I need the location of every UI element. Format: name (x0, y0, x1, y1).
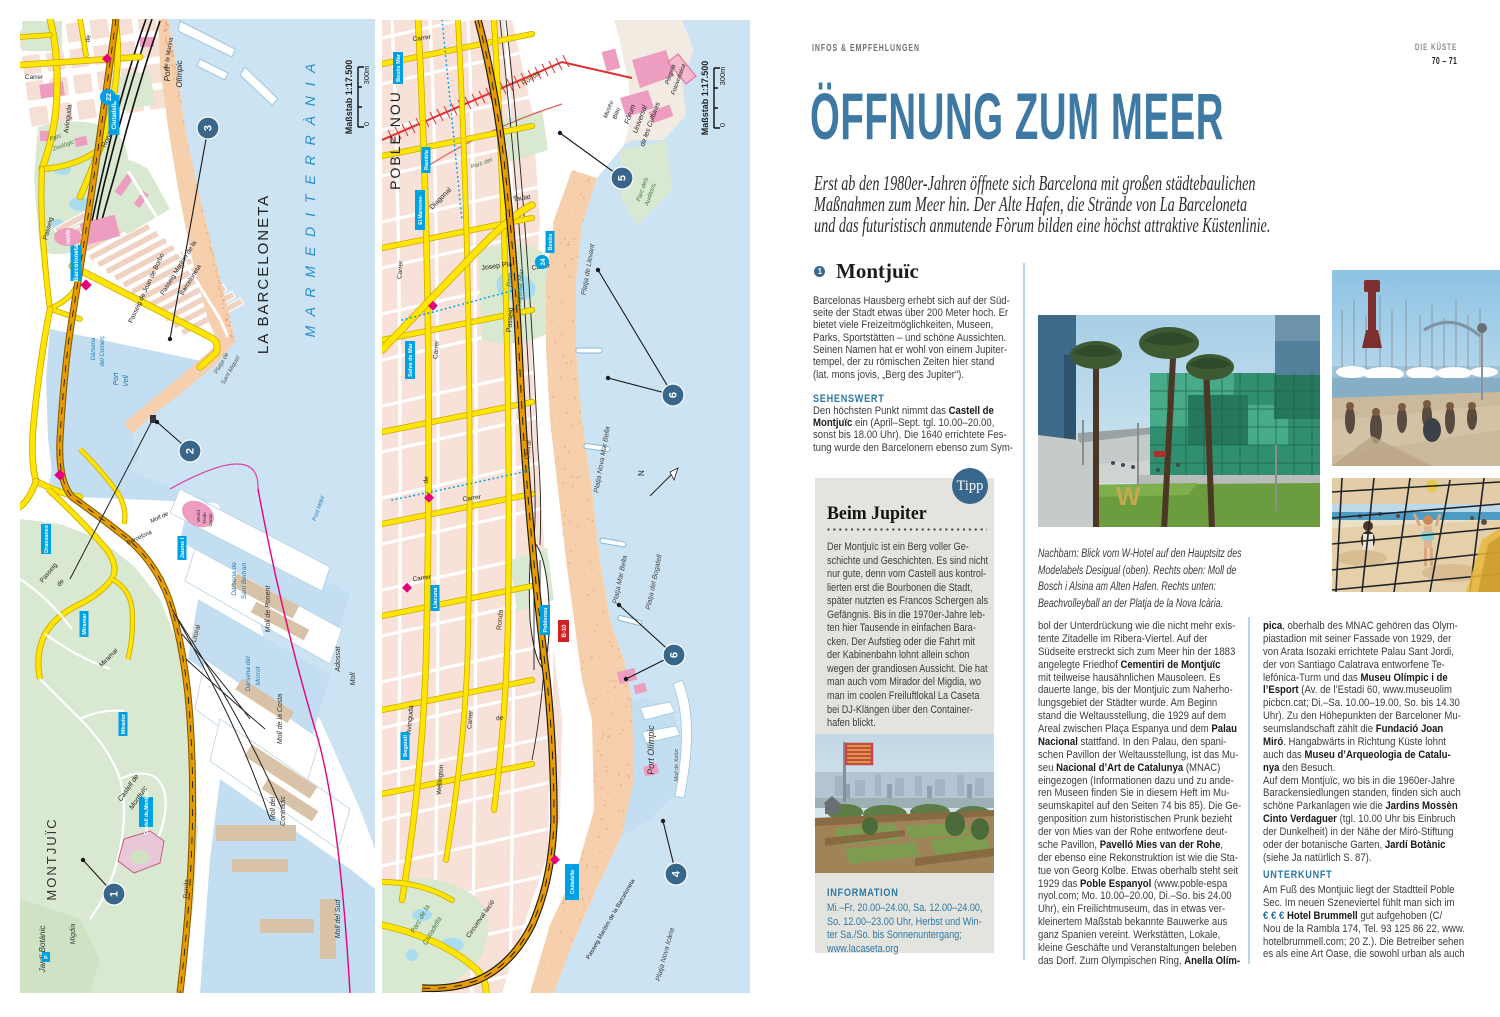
svg-text:Miramar: Miramar (82, 612, 88, 634)
svg-text:Parc: Parc (506, 272, 514, 287)
svg-text:Dàrsena: Dàrsena (91, 337, 97, 360)
svg-text:6: 6 (668, 392, 680, 398)
svg-text:Drassanes: Drassanes (44, 525, 50, 553)
svg-text:Besòs: Besòs (548, 234, 554, 251)
svg-text:Moll del: Moll del (270, 796, 277, 821)
svg-text:Vell: Vell (123, 375, 130, 387)
svg-text:N: N (637, 470, 646, 476)
svg-text:Poblenou: Poblenou (543, 607, 549, 632)
svg-text:Maßstab 1:17.500: Maßstab 1:17.500 (344, 60, 354, 135)
svg-text:Carrer: Carrer (25, 74, 44, 81)
svg-text:0: 0 (718, 123, 727, 127)
svg-text:300m: 300m (718, 67, 727, 86)
svg-text:W: W (1116, 481, 1141, 511)
svg-text:Moll de Xaloc: Moll de Xaloc (674, 748, 680, 781)
svg-text:Maßstab 1:17.500: Maßstab 1:17.500 (700, 61, 710, 136)
svg-text:24: 24 (540, 258, 547, 266)
svg-text:3: 3 (203, 125, 215, 131)
svg-text:Moll del Sud: Moll del Sud (335, 899, 342, 939)
svg-text:Dàrsena del: Dàrsena del (245, 656, 252, 692)
svg-text:LA BARCELONETA: LA BARCELONETA (255, 194, 272, 354)
svg-text:M A R M E D I T E R R À N I: M A R M E D I T E R R À N I A (302, 61, 318, 338)
svg-text:Castell de,Montjuïc: Castell de,Montjuïc (144, 789, 150, 835)
svg-text:6: 6 (669, 652, 681, 658)
svg-text:Olímpic: Olímpic (175, 60, 184, 87)
svg-text:de: de (423, 476, 431, 484)
svg-text:MONTJUÏC: MONTJUÏC (44, 817, 59, 900)
svg-text:Contradic: Contradic (280, 796, 287, 826)
svg-text:22: 22 (106, 93, 113, 101)
svg-text:Bogatell: Bogatell (403, 735, 409, 757)
svg-text:Jardí Botànic: Jardí Botànic (38, 926, 47, 974)
svg-text:2: 2 (185, 448, 197, 454)
svg-text:Ronda: Ronda (183, 879, 191, 899)
svg-text:Morrot: Morrot (255, 665, 262, 685)
svg-text:del Comerç: del Comerç (100, 336, 106, 367)
svg-text:Moll de Ponent: Moll de Ponent (265, 585, 272, 633)
svg-text:Trade: Trade (202, 512, 207, 524)
svg-text:Llacuna: Llacuna (433, 587, 439, 609)
svg-text:World: World (196, 510, 201, 522)
svg-text:POBLE NOU: POBLE NOU (387, 90, 403, 190)
svg-text:Migdia: Migdia (70, 924, 77, 945)
svg-text:El Maresme-: El Maresme- (418, 195, 424, 225)
svg-text:Dàrsena de: Dàrsena de (231, 562, 238, 596)
svg-text:Adossat: Adossat (335, 645, 342, 672)
svg-text:Port Olímpic: Port Olímpic (646, 725, 656, 775)
svg-text:renfe: renfe (66, 229, 72, 244)
svg-text:Sant Bertran: Sant Bertran (241, 562, 248, 599)
svg-text:Moll de la Costa: Moll de la Costa (277, 694, 284, 744)
svg-text:Port: Port (113, 372, 120, 386)
svg-text:1: 1 (109, 891, 121, 897)
svg-text:P: P (44, 955, 50, 959)
svg-text:5: 5 (617, 175, 629, 181)
svg-text:Center: Center (208, 513, 213, 527)
svg-text:Ciutadella: Ciutadella (570, 870, 576, 894)
svg-text:4: 4 (671, 870, 683, 877)
svg-text:de: de (496, 714, 505, 722)
svg-text:Ciutadella: Ciutadella (112, 100, 118, 129)
svg-text:300m: 300m (362, 66, 371, 85)
svg-text:Mirador: Mirador (121, 713, 127, 734)
svg-text:Besòs Mar: Besòs Mar (396, 53, 402, 82)
svg-text:Rambla: Rambla (424, 149, 430, 170)
svg-text:Barceloneta: Barceloneta (73, 244, 80, 282)
svg-text:Moll: Moll (350, 672, 357, 685)
svg-text:0: 0 (362, 122, 371, 126)
svg-text:Selva de Mar: Selva de Mar (408, 342, 414, 376)
svg-text:B-10: B-10 (562, 624, 568, 638)
svg-text:Jaume I: Jaume I (180, 537, 186, 558)
